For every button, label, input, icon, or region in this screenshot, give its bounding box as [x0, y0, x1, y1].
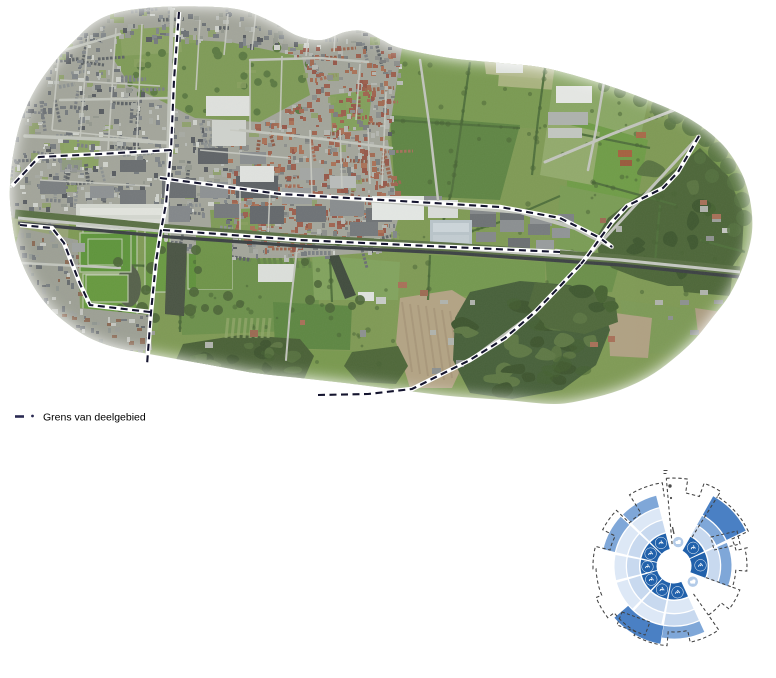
svg-text:Grens van deelgebied: Grens van deelgebied	[43, 412, 146, 424]
